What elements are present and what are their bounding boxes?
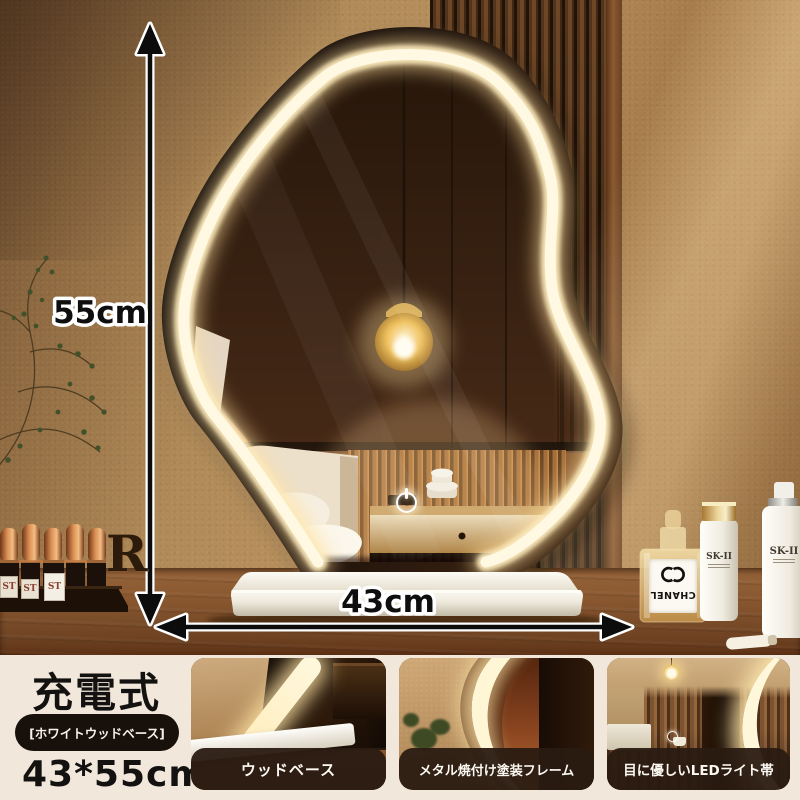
interlocked-cc-icon xyxy=(659,566,687,583)
chanel-bottle-label: CHANEL xyxy=(649,559,697,613)
lipstick-caps xyxy=(0,524,106,564)
thumbnail-caption-text: ウッドベース xyxy=(241,759,336,780)
thumb-plant xyxy=(430,719,450,735)
lipstick-brand-text: ST xyxy=(48,582,61,592)
feature-title: 充電式 xyxy=(32,659,161,719)
label-line xyxy=(773,562,795,563)
thumbnail-caption-text: メタル焼付け塗装フレーム xyxy=(419,760,575,779)
height-label: 55cm xyxy=(53,295,147,331)
thumbnail-metal-frame: メタル焼付け塗装フレーム xyxy=(399,658,594,790)
label-line xyxy=(708,564,730,565)
thumb-cabinet xyxy=(333,663,386,718)
feature-strip: 充電式 [ホワイトウッドベース] 43*55cm ウッドベース xyxy=(0,655,800,800)
variant-badge: [ホワイトウッドベース] xyxy=(15,714,179,751)
letter-r-ornament: R xyxy=(106,524,148,583)
skii-brand-text: SK-II xyxy=(706,552,732,562)
size-label: 43*55cm xyxy=(22,754,207,795)
thumbnail-caption: メタル焼付け塗装フレーム xyxy=(399,748,594,790)
power-icon xyxy=(396,492,417,513)
variant-badge-text: [ホワイトウッドベース] xyxy=(29,723,165,742)
thumbnail-caption-text: 目に優しいLEDライト帯 xyxy=(623,759,774,779)
lipstick-brand-text: ST xyxy=(2,582,15,592)
mirror xyxy=(150,27,623,640)
thumb-pendant-lamp xyxy=(664,665,679,680)
skii-brand-text: SK-II xyxy=(770,546,799,557)
info-panel: 充電式 [ホワイトウッドベース] 43*55cm xyxy=(0,655,190,800)
thumb-plant xyxy=(403,713,419,727)
lipstick-label: ST xyxy=(44,573,65,601)
label-line xyxy=(708,567,730,568)
thumbnail-led-strip: 目に優しいLEDライト帯 xyxy=(607,658,790,790)
width-label: 43cm xyxy=(341,584,435,620)
skii-bottle-label: SK-II xyxy=(704,552,734,568)
thumbnail-caption: ウッドベース xyxy=(191,748,386,790)
skii-bottle-label: SK-II xyxy=(766,546,800,563)
product-image: 55cm 43cm ST ST ST R CHANEL SK-II SK-II xyxy=(0,0,800,800)
chanel-brand-text: CHANEL xyxy=(650,589,696,600)
power-icon-line xyxy=(405,488,408,499)
thumbnail-wood-base: ウッドベース xyxy=(191,658,386,790)
cosmetic-tube xyxy=(726,634,778,650)
main-scene: 55cm 43cm ST ST ST R CHANEL SK-II SK-II xyxy=(0,0,800,655)
thumb-cabinet xyxy=(607,724,651,750)
lipstick-label: ST xyxy=(0,576,18,598)
thumbnail-caption: 目に優しいLEDライト帯 xyxy=(607,748,790,790)
lipstick-brand-text: ST xyxy=(23,584,36,594)
lipstick-label: ST xyxy=(21,579,39,599)
label-line xyxy=(773,559,795,560)
